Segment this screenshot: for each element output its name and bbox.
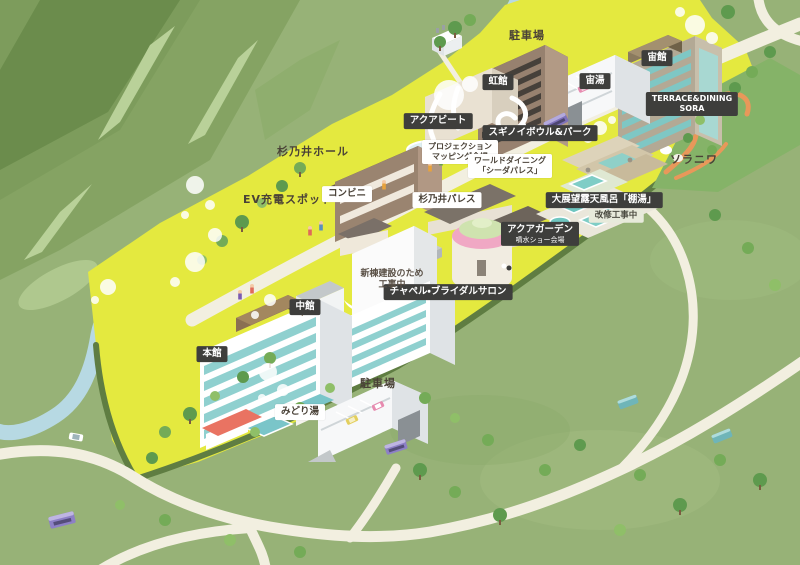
label-sorayu: 宙湯 xyxy=(579,73,610,89)
label-parking-top: 駐車場 xyxy=(509,29,545,43)
label-tanayu: 大展望露天風呂「棚湯」 xyxy=(546,192,663,208)
label-world-dining-line1: ワールドダイニング xyxy=(474,156,546,165)
label-suginoi-hall: 杉乃井ホール xyxy=(277,145,349,159)
label-aqua-garden: アクアガーデン 噴水ショー会場 xyxy=(501,222,579,246)
label-conbini: コンビニ xyxy=(322,186,372,202)
label-construction-line1: 新棟建設のため xyxy=(360,269,423,279)
label-tanayu-renovation: 改修工事中 xyxy=(589,210,644,223)
label-terrace-sora-line2: SORA xyxy=(652,104,732,114)
label-sorakan: 宙館 xyxy=(641,50,672,66)
label-projection-line1: プロジェクション xyxy=(428,142,492,151)
label-honkan: 本館 xyxy=(196,346,227,362)
label-nijikan: 虹館 xyxy=(482,74,513,90)
label-suginoi-palace: 杉乃井パレス xyxy=(412,192,481,208)
label-ev-spot: EV充電スポット xyxy=(243,193,333,207)
label-terrace-sora: TERRACE&DINING SORA xyxy=(646,92,738,116)
label-aquabeat: アクアビート xyxy=(404,113,473,129)
label-construction-line2: 工事中 xyxy=(360,280,423,291)
label-parking-bottom: 駐車場 xyxy=(360,377,396,391)
label-midoriyu: みどり湯 xyxy=(275,404,325,420)
label-world-dining-line2: 「シーダパレス」 xyxy=(474,166,546,176)
label-construction: 新棟建設のため 工事中 xyxy=(360,269,423,292)
label-nakakan: 中館 xyxy=(289,299,320,315)
label-aqua-garden-sub: 噴水ショー会場 xyxy=(507,236,573,244)
resort-map: 駐車場 虹館 アクアビート 宙館 宙湯 TERRACE&DINING SORA … xyxy=(0,0,800,565)
label-aqua-garden-title: アクアガーデン xyxy=(507,224,573,235)
label-terrace-sora-line1: TERRACE&DINING xyxy=(652,94,732,103)
label-soraniwa: ソラニワ xyxy=(670,153,718,167)
label-bowl-park: スギノイボウル&パーク xyxy=(483,125,598,141)
label-world-dining: ワールドダイニング 「シーダパレス」 xyxy=(468,154,552,178)
